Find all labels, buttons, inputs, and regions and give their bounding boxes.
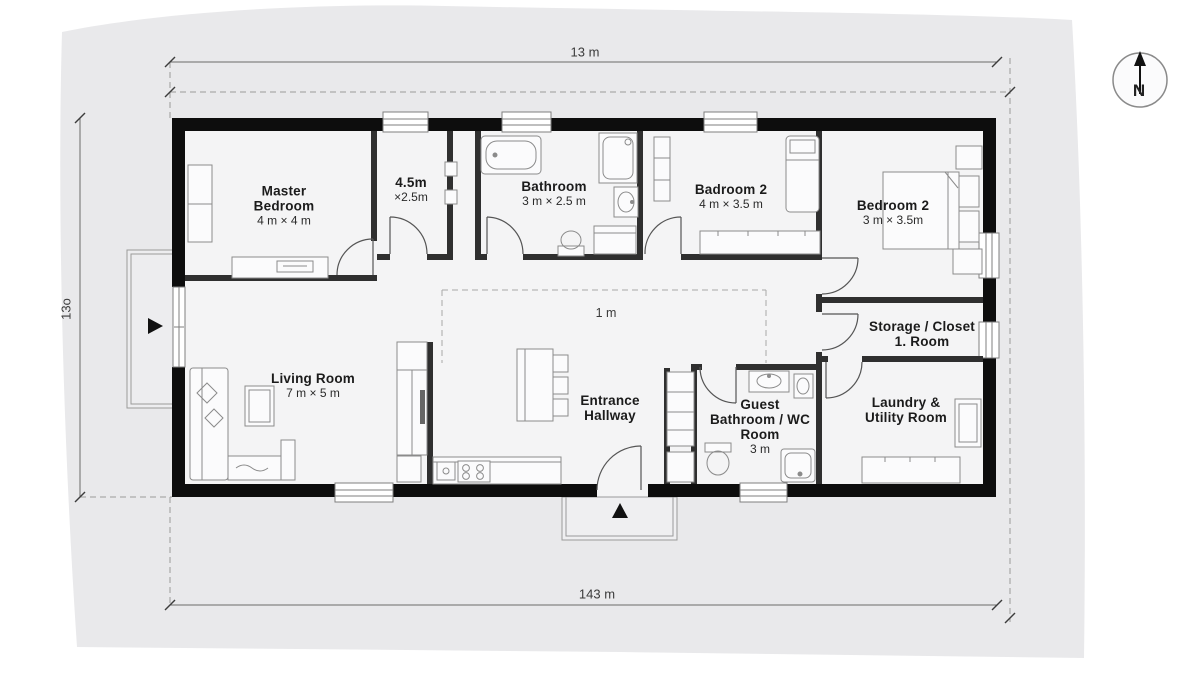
room-label-bedroom-2: Bedroom 2 3 m × 3.5m bbox=[857, 198, 929, 228]
room-label-badroom-2: Badroom 2 4 m × 3.5 m bbox=[695, 182, 767, 212]
room-label-45m-room: 4.5m ×2.5m bbox=[394, 175, 428, 205]
dimension-hallway: 1 m bbox=[596, 306, 617, 320]
badroom2-bed bbox=[786, 136, 819, 212]
floor-plan-drawing bbox=[0, 0, 1199, 685]
living-coffee-table bbox=[245, 386, 274, 426]
badroom2-wardrobe bbox=[654, 137, 670, 201]
room-label-master-bedroom: Master Bedroom 4 m × 4 m bbox=[254, 184, 315, 229]
badroom2-dresser bbox=[700, 231, 820, 254]
laundry-counter bbox=[862, 457, 960, 483]
guest-sink-2 bbox=[794, 374, 813, 398]
bathroom-cabinet bbox=[594, 226, 636, 254]
terrace-glass-door bbox=[173, 287, 185, 367]
entry-porch bbox=[562, 497, 677, 540]
room-label-entrance-hallway: Entrance Hallway bbox=[580, 393, 639, 423]
room-label-living-room: Living Room 7 m × 5 m bbox=[271, 371, 355, 401]
window-top-1 bbox=[383, 112, 428, 132]
room-label-guest-bathroom: Guest Bathroom / WC Room 3 m bbox=[710, 397, 810, 457]
compass-north-label: N bbox=[1133, 81, 1145, 101]
tv-panel bbox=[420, 390, 425, 424]
shower bbox=[599, 133, 637, 183]
floor-plan-page: 13 m 13o 143 m 1 m N Master Bedroom 4 m … bbox=[0, 0, 1199, 685]
kitchen-sink bbox=[437, 462, 455, 480]
window-top-2 bbox=[502, 112, 551, 132]
window-bottom-living bbox=[335, 483, 393, 502]
building-floor bbox=[172, 118, 996, 497]
hallway-closet bbox=[667, 372, 694, 482]
dimension-left: 13o bbox=[59, 298, 74, 320]
dimension-top: 13 m bbox=[571, 45, 600, 60]
window-right-storage bbox=[979, 322, 999, 358]
bathtub bbox=[481, 136, 541, 174]
room-label-storage-closet: Storage / Closet 1. Room bbox=[869, 319, 975, 349]
room-label-bathroom: Bathroom 3 m × 2.5 m bbox=[521, 179, 586, 209]
master-dresser bbox=[232, 257, 328, 278]
room-label-laundry-utility: Laundry & Utility Room bbox=[865, 395, 947, 425]
window-bottom-guest-bath bbox=[740, 483, 787, 502]
bathroom-sink bbox=[614, 187, 638, 217]
guest-sink bbox=[749, 371, 789, 392]
kitchen-island bbox=[517, 349, 568, 421]
window-top-3 bbox=[704, 112, 757, 132]
laundry-washer bbox=[955, 399, 981, 447]
master-wardrobe bbox=[188, 165, 212, 242]
dimension-bottom: 143 m bbox=[579, 587, 615, 602]
kitchen-stove bbox=[458, 461, 490, 482]
